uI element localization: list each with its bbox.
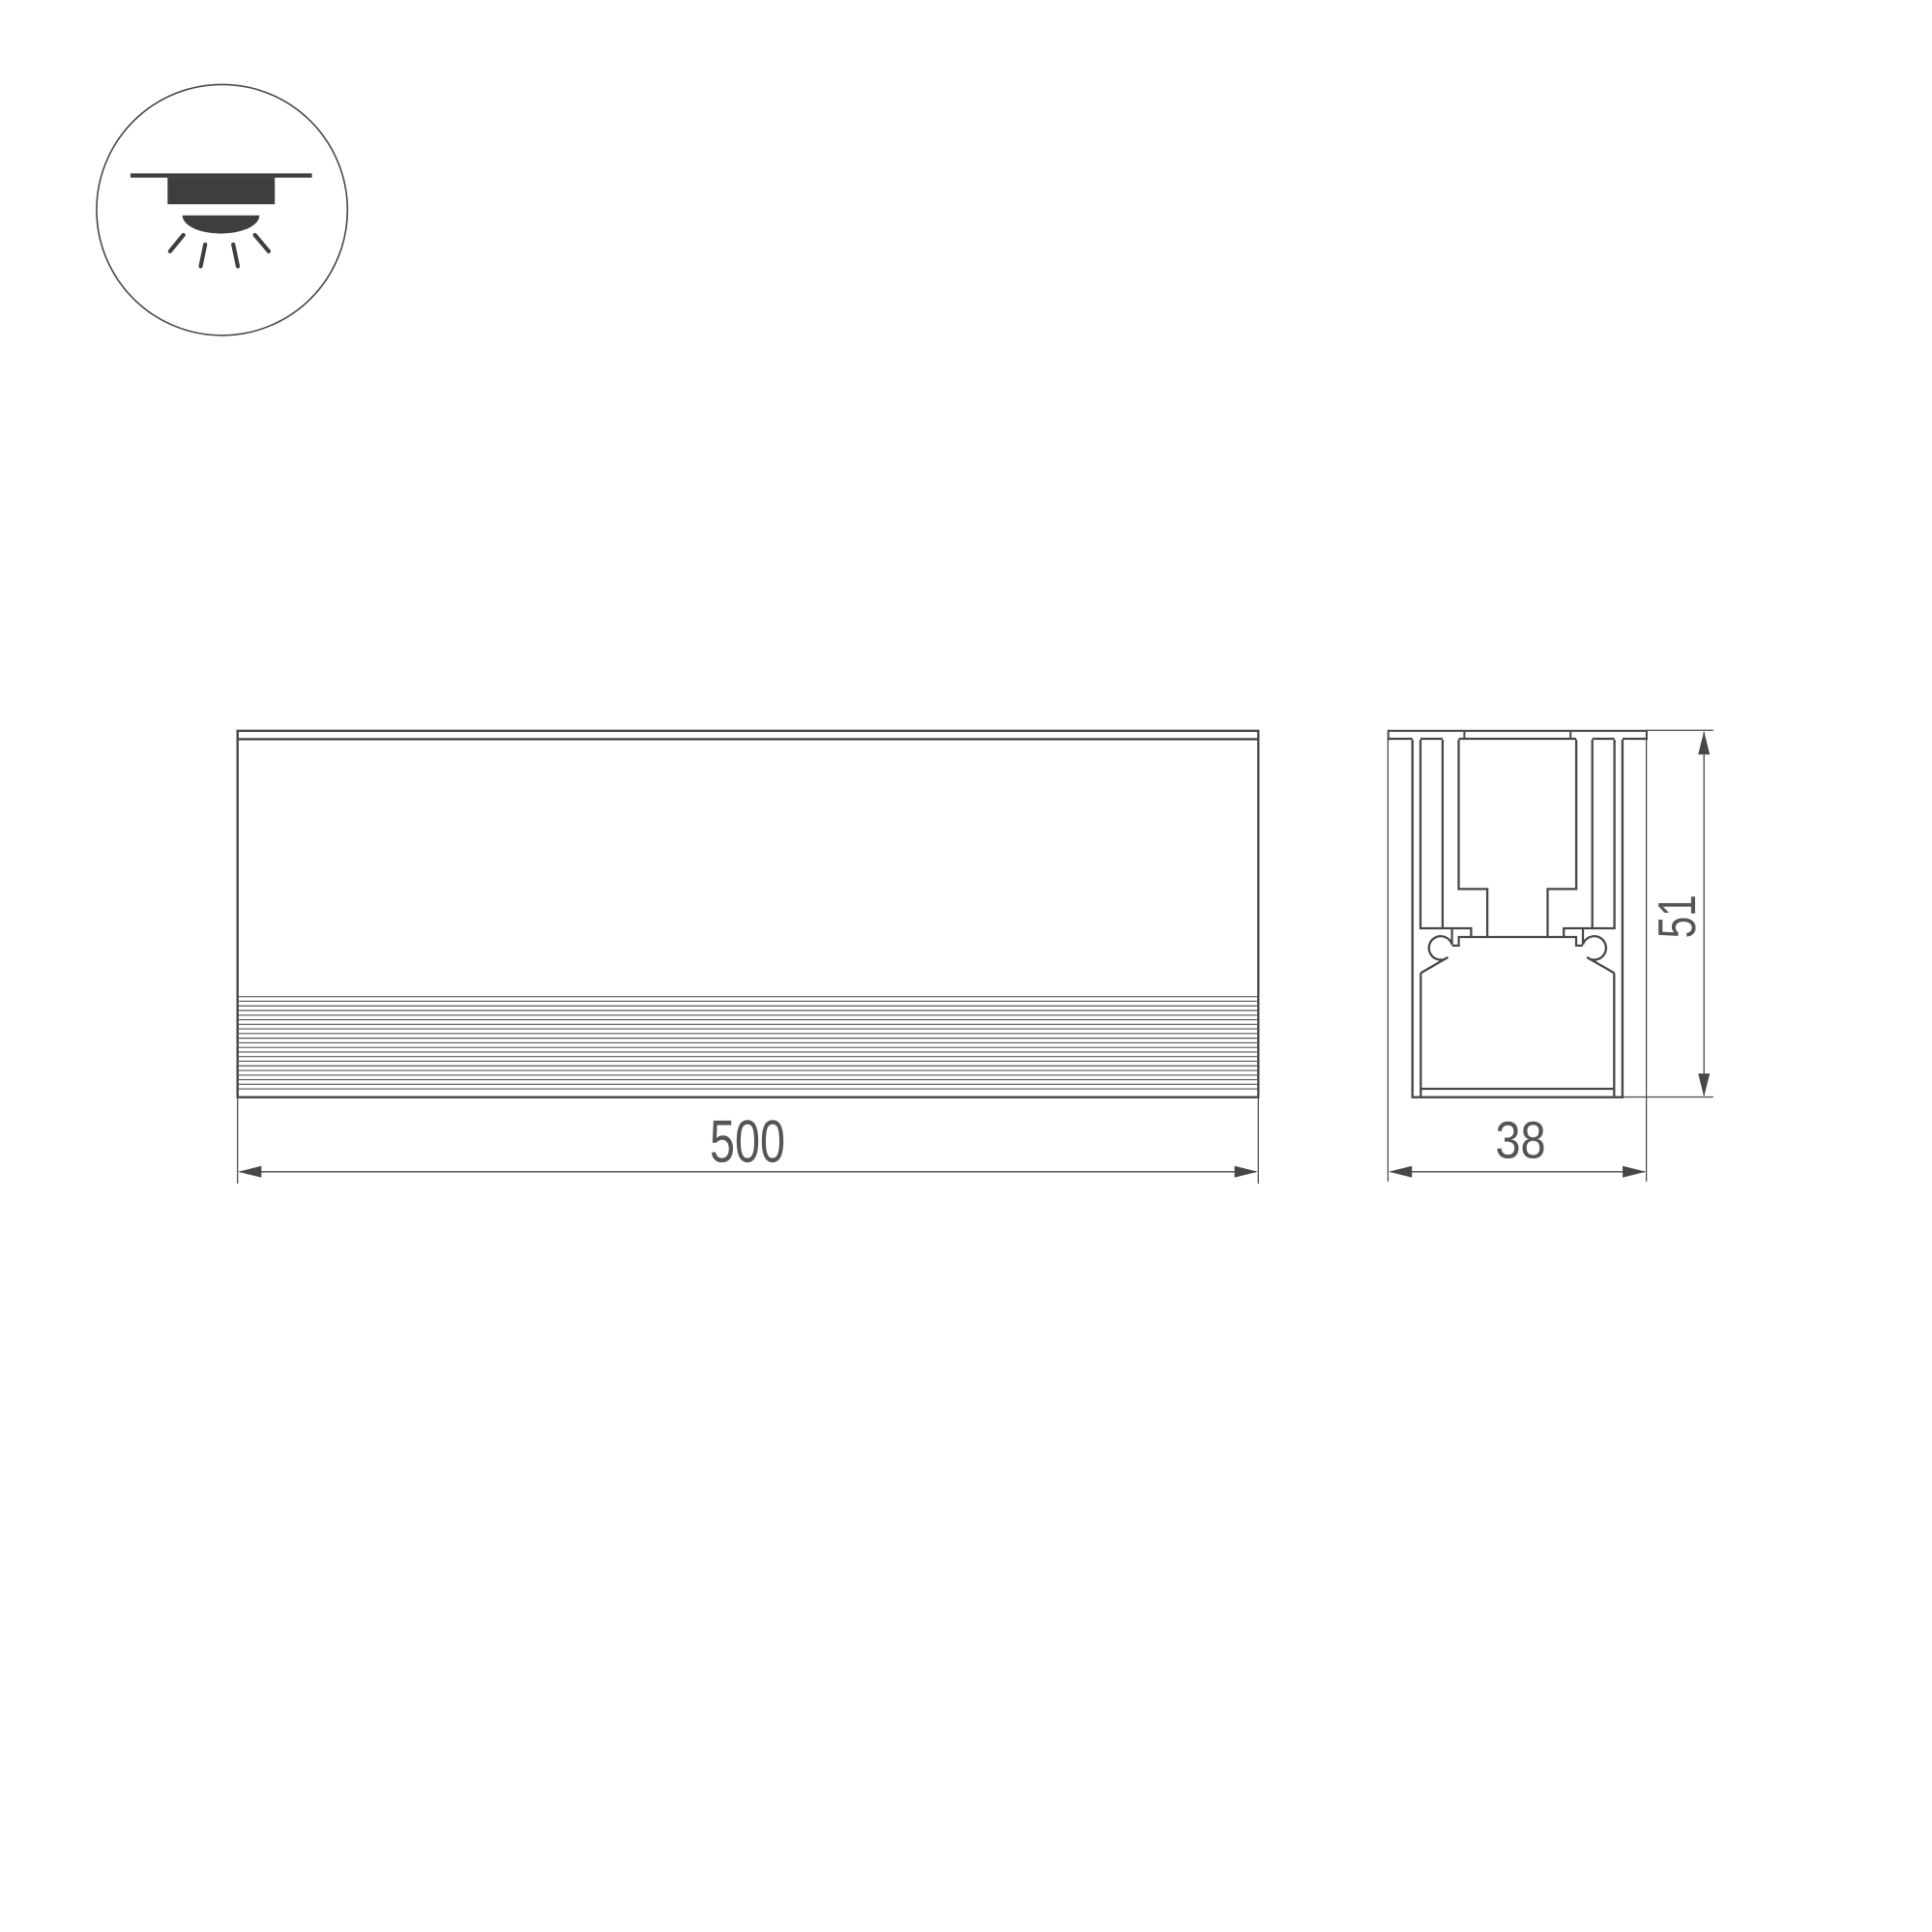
svg-text:38: 38 (1496, 1112, 1546, 1170)
svg-text:51: 51 (1647, 894, 1707, 938)
svg-text:500: 500 (710, 1109, 785, 1176)
